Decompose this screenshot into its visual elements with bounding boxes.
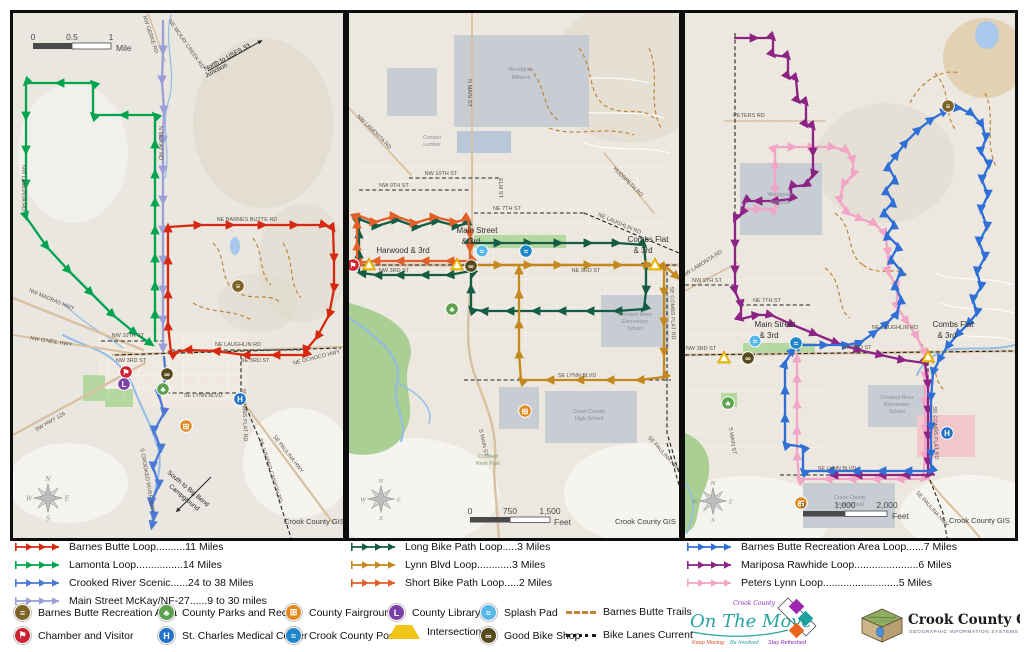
gis-logo-title: Crook County GIS	[908, 612, 1020, 628]
svg-text:0: 0	[468, 506, 473, 516]
junction-label: & 3rd	[633, 246, 652, 255]
junction-label: & 3rd	[937, 331, 956, 340]
parks-icon: ♣	[158, 604, 175, 621]
line-type-label: Bike Lanes Current	[603, 629, 693, 641]
intersection-icon	[388, 625, 420, 639]
road-label: NE 7TH ST	[493, 206, 522, 212]
place-label: Crooked River	[618, 312, 651, 318]
svg-text:∞: ∞	[468, 262, 474, 271]
road-label: NW 3RD ST	[686, 346, 717, 352]
place-label: Contact	[423, 135, 441, 141]
svg-text:S: S	[379, 515, 383, 522]
svg-text:N: N	[44, 476, 51, 483]
junction-label: & 3rd	[759, 331, 778, 340]
place-label: School	[889, 409, 905, 415]
junction-label: Main Street	[457, 226, 499, 235]
svg-text:1,500: 1,500	[539, 506, 561, 516]
road-label: NE 3RD ST	[572, 268, 601, 274]
svg-text:0: 0	[801, 500, 806, 510]
svg-text:2,000: 2,000	[876, 500, 898, 510]
road-label: NE 7TH ST	[753, 298, 782, 304]
chamber-icon: ⚑	[349, 259, 359, 272]
hospital-icon: H	[234, 393, 247, 406]
legend-route-row: Lynn Blvd Loop............3 Miles	[350, 559, 545, 571]
bike-shop-icon: ∞	[161, 368, 174, 381]
barnes-butte-icon: ≡	[942, 100, 955, 113]
hospital-icon: H	[158, 627, 175, 644]
road-label: ELM ST	[497, 178, 503, 199]
legend-poi-item: ♣ County Parks and Rec	[158, 604, 287, 621]
library-icon: L	[388, 604, 405, 621]
route-legend-label: Long Bike Path Loop.....3 Miles	[405, 541, 550, 553]
svg-text:S: S	[711, 517, 715, 524]
route-line-swatch	[350, 559, 396, 571]
junction-label: & 3rd	[461, 237, 480, 246]
svg-text:≡: ≡	[946, 102, 951, 111]
dashed-line-swatch	[566, 611, 596, 614]
map-eastside-svg: Woodgrain Millwork Crooked River Element…	[685, 13, 1015, 538]
map-attribution: Crook County GIS	[284, 517, 343, 526]
route-legend-label: Short Bike Path Loop.....2 Miles	[405, 577, 552, 589]
svg-text:N: N	[709, 480, 716, 487]
fairgrounds-icon: ⊞	[180, 420, 193, 433]
line-type-label: Barnes Butte Trails	[603, 606, 692, 618]
place-label: River Park	[476, 461, 501, 467]
map-overview-svg: NW GERKE RD NE MCKAY CREEK RD N MCKAY RD…	[13, 13, 343, 538]
road-label: NW 10TH ST	[425, 171, 458, 177]
dotted-line-swatch	[566, 634, 596, 637]
place-label: Elementary	[622, 319, 649, 325]
route-line-swatch	[14, 577, 60, 589]
place-label: School	[627, 326, 643, 332]
on-the-move-logo: Crook County On The Move Keep Moving Be …	[688, 596, 818, 650]
map-overview-panel: NW GERKE RD NE MCKAY CREEK RD N MCKAY RD…	[10, 10, 346, 541]
svg-text:W: W	[26, 496, 33, 503]
route-legend-label: Lamonta Loop................14 Miles	[69, 559, 222, 571]
road-label: SE LYNN BLVD	[818, 466, 857, 472]
road-label: NE LAUGHLIN RD	[215, 342, 261, 348]
logo-tagline: Stay Refreshed	[768, 640, 807, 646]
svg-text:∞: ∞	[164, 370, 170, 379]
road-label: NE BARNES BUTTE RD	[217, 217, 278, 223]
route-line-swatch	[350, 577, 396, 589]
svg-text:L: L	[122, 380, 127, 389]
svg-text:0.5: 0.5	[66, 32, 78, 42]
fairgrounds-icon: ⊞	[519, 405, 532, 418]
route-legend-label: Crooked River Scenic......24 to 38 Miles	[69, 577, 253, 589]
place-label: Lumber	[423, 142, 441, 148]
route-legend-label: Barnes Butte Loop..........11 Miles	[69, 541, 223, 553]
svg-text:≈: ≈	[480, 247, 485, 256]
chamber-icon: ⚑	[120, 366, 133, 379]
place-label: Crooked River	[880, 395, 913, 401]
svg-text:1,000: 1,000	[834, 500, 856, 510]
legend-poi-item: Intersections	[388, 625, 487, 639]
poi-label: County Parks and Rec	[182, 607, 287, 619]
pool-icon: ≈	[285, 627, 302, 644]
place-label: Crook County	[573, 409, 605, 415]
pool-icon: ≈	[790, 337, 803, 350]
legend-route-row: Lamonta Loop................14 Miles	[14, 559, 222, 571]
splash-pad-icon: ≈	[749, 335, 761, 347]
legend-poi-item: ≈ Crook County Pool	[285, 627, 397, 644]
legend-poi-item: ≈ Splash Pad	[480, 604, 558, 621]
svg-text:750: 750	[503, 506, 517, 516]
splash-pad-icon: ≈	[476, 245, 488, 257]
svg-text:⊞: ⊞	[183, 422, 190, 431]
place-label: High School	[575, 416, 603, 422]
svg-text:♣: ♣	[725, 399, 731, 408]
route-line-swatch	[350, 541, 396, 553]
route-line-swatch	[686, 559, 732, 571]
svg-text:E: E	[728, 499, 734, 506]
svg-text:W: W	[692, 499, 699, 506]
svg-text:Feet: Feet	[892, 511, 910, 521]
route-legend-label: Lynn Blvd Loop............3 Miles	[405, 559, 545, 571]
map-downtown-panel: Woodgrain Millwork Contact Lumber Crooke…	[346, 10, 682, 541]
road-label: N MCKAY RD	[157, 126, 163, 160]
chamber-icon: ⚑	[14, 627, 31, 644]
logo-prefix: Crook County	[733, 600, 776, 607]
parks-icon: ♣	[157, 383, 170, 396]
svg-text:N: N	[377, 478, 384, 485]
junction-label: Harwood & 3rd	[376, 246, 429, 255]
logo-tagline: Keep Moving	[692, 640, 725, 646]
legend-route-row: Long Bike Path Loop.....3 Miles	[350, 541, 550, 553]
legend-route-row: Short Bike Path Loop.....2 Miles	[350, 577, 552, 589]
svg-text:≈: ≈	[753, 337, 758, 346]
poi-label: Chamber and Visitor	[38, 630, 134, 642]
road-label: NW 3RD ST	[379, 268, 410, 274]
road-label: SE LYNN BLVD	[558, 373, 597, 379]
map-attribution: Crook County GIS	[615, 517, 676, 526]
road-label: SE LYNN BLVD	[184, 393, 223, 399]
svg-text:0: 0	[31, 32, 36, 42]
library-icon: L	[118, 378, 131, 391]
svg-text:Feet: Feet	[554, 517, 572, 527]
poi-label: County Library	[412, 607, 480, 619]
legend-line-item: Barnes Butte Trails	[566, 606, 692, 618]
on-the-move-logo-svg: Crook County On The Move Keep Moving Be …	[688, 596, 818, 650]
svg-text:♣: ♣	[160, 385, 166, 394]
road-label: NW 3RD ST	[116, 358, 147, 364]
parks-icon: ♣	[722, 397, 735, 410]
crook-county-gis-logo: Crook County GIS GEOGRAPHIC INFORMATION …	[860, 600, 1020, 650]
svg-text:≈: ≈	[524, 247, 529, 256]
parks-icon: ♣	[446, 303, 459, 316]
junction-label: Combs Flat	[628, 235, 670, 244]
route-legend-label: Mariposa Rawhide Loop...................…	[741, 559, 952, 571]
legend-poi-item: ⊞ County Fairgrounds	[285, 604, 401, 621]
legend-route-row: Barnes Butte Recreation Area Loop......7…	[686, 541, 957, 553]
svg-text:♣: ♣	[449, 305, 455, 314]
road-label: NW LAMONTA RD	[20, 165, 26, 211]
svg-text:H: H	[237, 395, 243, 404]
barnes-butte-icon: ≡	[14, 604, 31, 621]
route-line-swatch	[686, 577, 732, 589]
bike-shop-icon: ∞	[465, 260, 478, 273]
legend-route-row: Barnes Butte Loop..........11 Miles	[14, 541, 223, 553]
svg-text:⚑: ⚑	[122, 368, 129, 377]
legend-poi-item: L County Library	[388, 604, 480, 621]
splash-pad-icon: ≈	[480, 604, 497, 621]
route-legend-label: Barnes Butte Recreation Area Loop......7…	[741, 541, 957, 553]
route-line-swatch	[14, 559, 60, 571]
gis-logo-svg: Crook County GIS GEOGRAPHIC INFORMATION …	[860, 600, 1020, 650]
poi-label: Intersections	[427, 626, 487, 638]
poi-label: Splash Pad	[504, 607, 558, 619]
pool-icon: ≈	[520, 245, 533, 258]
fairgrounds-icon: ⊞	[285, 604, 302, 621]
svg-text:W: W	[360, 497, 367, 504]
logo-tagline: Be Involved	[730, 640, 760, 646]
bike-shop-icon: ∞	[480, 627, 497, 644]
place-label: Elementary	[884, 402, 911, 408]
gis-cube-icon	[862, 609, 902, 642]
poi-label: Crook County Pool	[309, 630, 397, 642]
legend-route-row: Peters Lynn Loop........................…	[686, 577, 932, 589]
svg-text:H: H	[944, 429, 950, 438]
junction-label: Combs Flat	[933, 320, 975, 329]
road-label: NE LAUGHLIN RD	[872, 325, 918, 331]
road-label: PETERS RD	[733, 113, 765, 119]
hospital-icon: H	[941, 427, 954, 440]
legend-line-item: Bike Lanes Current	[566, 629, 693, 641]
road-label: NE 3RD ST	[843, 345, 872, 351]
route-line-swatch	[14, 541, 60, 553]
place-label: Woodgrain	[768, 192, 793, 198]
gis-logo-subtitle: GEOGRAPHIC INFORMATION SYSTEMS	[909, 629, 1018, 635]
map-eastside-panel: Woodgrain Millwork Crooked River Element…	[682, 10, 1018, 541]
road-label: N MAIN ST	[466, 79, 472, 107]
junction-label: Main Street	[755, 320, 797, 329]
map-attribution: Crook County GIS	[949, 516, 1010, 525]
bike-shop-icon: ∞	[742, 352, 755, 365]
poi-label: Barnes Butte Recreation Area	[38, 607, 177, 619]
svg-text:⚑: ⚑	[349, 261, 356, 270]
route-legend-label: Peters Lynn Loop........................…	[741, 577, 932, 589]
barnes-butte-icon: ≡	[232, 280, 245, 293]
bike-loops-poster: NW GERKE RD NE MCKAY CREEK RD N MCKAY RD…	[0, 0, 1024, 652]
road-label: NE 3RD ST	[241, 358, 270, 364]
svg-text:≈: ≈	[794, 339, 799, 348]
svg-text:Mile: Mile	[116, 43, 132, 53]
place-label: Millwork	[512, 75, 531, 81]
svg-text:∞: ∞	[745, 354, 751, 363]
road-label: NW 10TH ST	[112, 333, 145, 339]
road-label: NW 9TH ST	[692, 278, 722, 284]
place-label: Millwork	[771, 200, 790, 206]
legend-route-row: Mariposa Rawhide Loop...................…	[686, 559, 952, 571]
svg-text:E: E	[64, 496, 70, 503]
map-downtown-svg: Woodgrain Millwork Contact Lumber Crooke…	[349, 13, 679, 538]
road-label: NW 9TH ST	[379, 183, 409, 189]
legend-poi-item: ⚑ Chamber and Visitor	[14, 627, 134, 644]
svg-text:⊞: ⊞	[522, 407, 529, 416]
legend-route-row: Crooked River Scenic......24 to 38 Miles	[14, 577, 253, 589]
svg-text:≡: ≡	[236, 282, 241, 291]
svg-text:1: 1	[109, 32, 114, 42]
legend-poi-item: ≡ Barnes Butte Recreation Area	[14, 604, 177, 621]
svg-text:E: E	[396, 497, 402, 504]
svg-text:S: S	[46, 516, 51, 523]
route-line-swatch	[686, 541, 732, 553]
place-label: Woodgrain	[509, 67, 534, 73]
